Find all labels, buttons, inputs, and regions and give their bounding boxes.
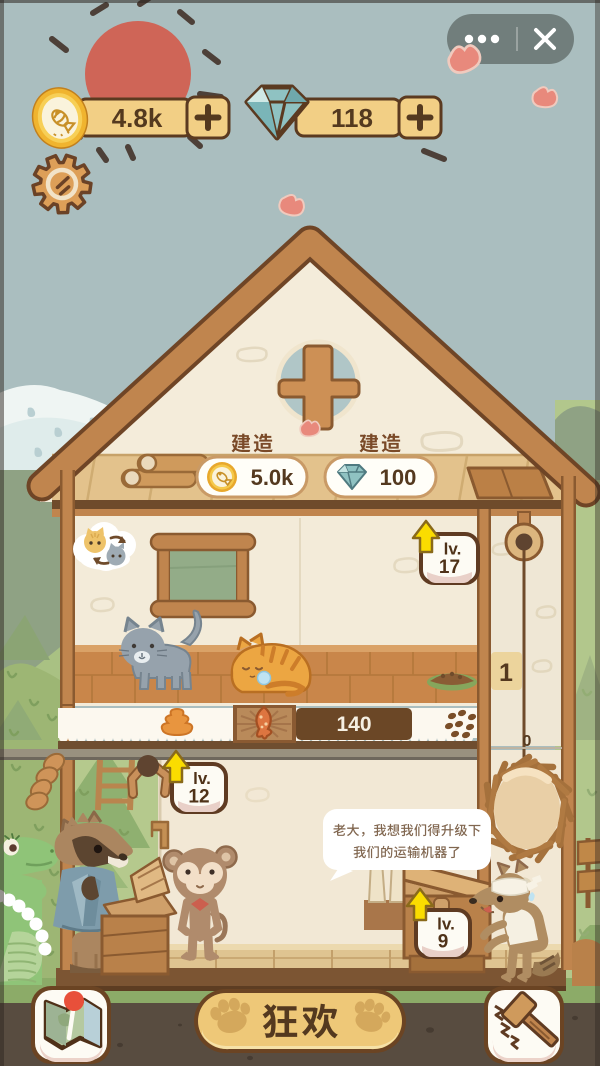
svg-text:140: 140 [336, 713, 371, 736]
svg-text:lv.: lv. [193, 769, 211, 788]
svg-text:118: 118 [331, 103, 373, 133]
svg-text:0: 0 [523, 733, 532, 750]
svg-text:4.8k: 4.8k [112, 103, 163, 133]
svg-text:12: 12 [188, 786, 209, 807]
svg-text:17: 17 [439, 557, 460, 578]
svg-text:5.0k: 5.0k [251, 465, 295, 490]
svg-text:100: 100 [380, 465, 417, 490]
svg-text:1: 1 [499, 659, 513, 687]
svg-text:lv.: lv. [444, 540, 462, 559]
svg-text:9: 9 [438, 932, 449, 953]
